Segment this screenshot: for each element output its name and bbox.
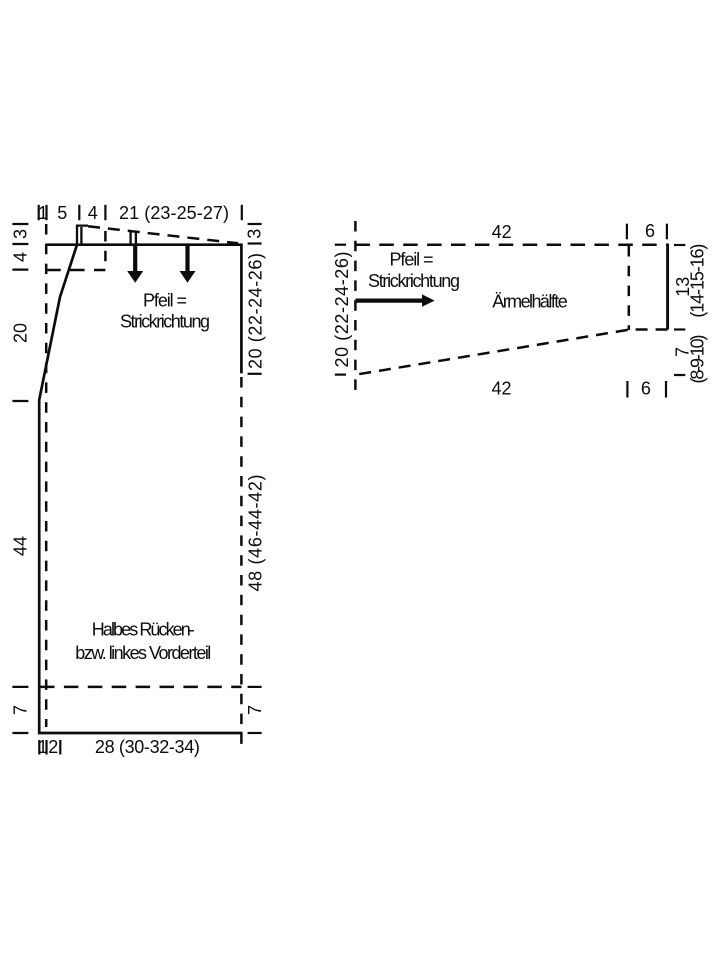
svg-text:20: 20: [11, 323, 31, 343]
svg-text:(8-9-10): (8-9-10): [688, 335, 708, 384]
svg-text:28 (30-32-34): 28 (30-32-34): [95, 737, 200, 757]
svg-text:3: 3: [244, 229, 264, 239]
svg-text:20 (22-24-26): 20 (22-24-26): [246, 253, 266, 369]
svg-text:6: 6: [645, 221, 655, 241]
svg-text:7: 7: [11, 705, 31, 715]
svg-text:4: 4: [11, 252, 31, 262]
svg-text:48 (46-44-42): 48 (46-44-42): [246, 475, 266, 592]
svg-text:4: 4: [88, 203, 98, 223]
svg-text:21 (23-25-27): 21 (23-25-27): [119, 203, 229, 223]
svg-text:Pfeil =: Pfeil =: [143, 290, 187, 310]
svg-text:(14-15-16): (14-15-16): [688, 244, 708, 318]
svg-text:Ärmelhälfte: Ärmelhälfte: [492, 291, 568, 311]
svg-text:42: 42: [492, 222, 512, 242]
svg-text:20 (22-24-26): 20 (22-24-26): [332, 252, 352, 368]
svg-text:Pfeil =: Pfeil =: [390, 249, 434, 269]
svg-text:42: 42: [491, 378, 511, 398]
svg-text:5: 5: [57, 203, 67, 223]
svg-text:3: 3: [11, 229, 31, 239]
svg-text:Strickrichtung: Strickrichtung: [120, 312, 210, 332]
svg-text:Strickrichtung: Strickrichtung: [368, 271, 460, 291]
svg-text:bzw. linkes Vorderteil: bzw. linkes Vorderteil: [75, 643, 211, 663]
svg-text:Halbes Rücken-: Halbes Rücken-: [92, 620, 195, 640]
svg-text:44: 44: [11, 536, 31, 556]
svg-text:2: 2: [48, 737, 58, 757]
svg-text:7: 7: [245, 705, 265, 715]
svg-text:6: 6: [641, 378, 651, 398]
